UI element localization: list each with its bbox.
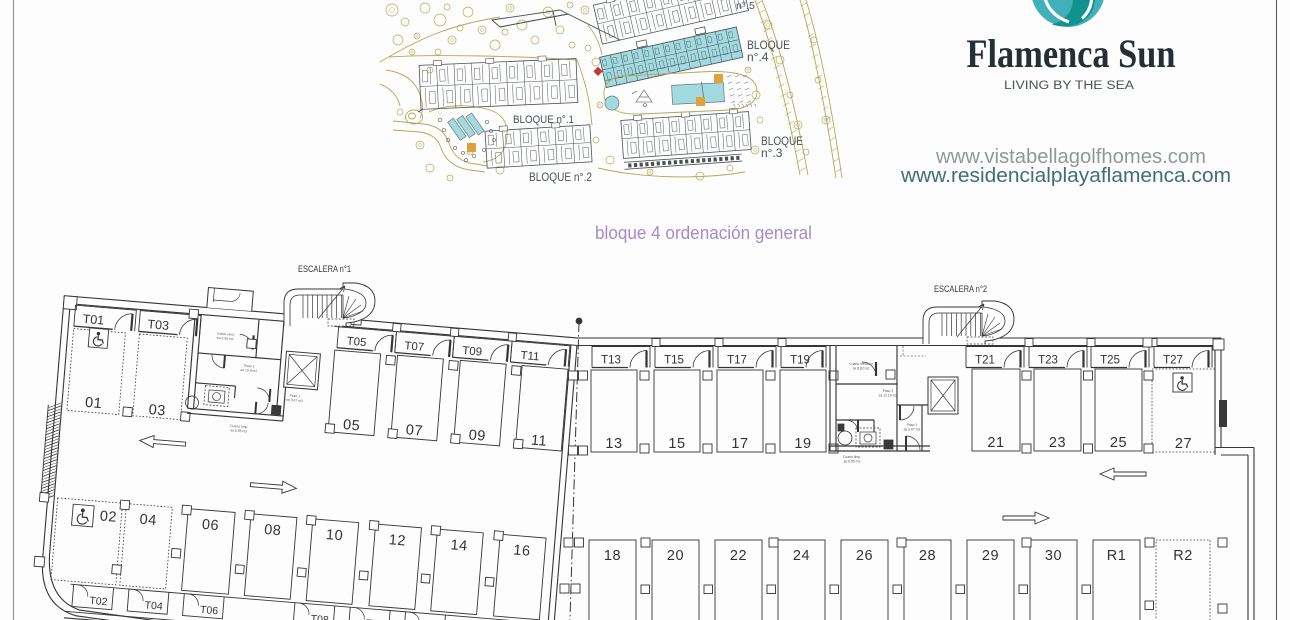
svg-text:15: 15	[668, 436, 685, 452]
svg-text:ESCALERA n°2: ESCALERA n°2	[934, 284, 987, 294]
svg-text:16: 16	[513, 542, 531, 559]
svg-text:T09: T09	[462, 345, 483, 359]
svg-text:n°.4: n°.4	[747, 50, 769, 64]
svg-text:BLOQUE n°.1: BLOQUE n°.1	[513, 114, 574, 126]
svg-text:T15: T15	[664, 355, 684, 367]
svg-text:Paso 1: Paso 1	[907, 423, 918, 427]
svg-text:08: 08	[264, 522, 282, 539]
svg-text:sa 6.95 m2: sa 6.95 m2	[844, 459, 861, 463]
svg-text:R1: R1	[1107, 548, 1127, 564]
svg-text:T17: T17	[727, 355, 747, 367]
svg-text:Paso 2: Paso 2	[883, 389, 894, 393]
svg-text:T21: T21	[975, 355, 995, 367]
svg-text:T07: T07	[404, 340, 425, 354]
svg-text:T19: T19	[790, 355, 810, 367]
svg-text:24: 24	[793, 548, 810, 564]
svg-text:www.residencialplayaflamenca.c: www.residencialplayaflamenca.com	[900, 164, 1231, 187]
svg-text:LIVING BY THE SEA: LIVING BY THE SEA	[1004, 80, 1134, 92]
svg-text:09: 09	[468, 427, 486, 444]
svg-text:05: 05	[342, 417, 360, 434]
svg-text:19: 19	[794, 436, 811, 452]
svg-text:sa 12.19 m2: sa 12.19 m2	[879, 393, 898, 397]
svg-text:sa 2.05 m2: sa 2.05 m2	[217, 336, 234, 341]
svg-text:T03: T03	[147, 317, 170, 333]
svg-text:17: 17	[731, 436, 748, 452]
svg-text:18: 18	[604, 548, 621, 564]
svg-text:29: 29	[982, 548, 999, 564]
svg-text:25: 25	[1110, 435, 1127, 451]
svg-text:Cuarto electrico: Cuarto electrico	[849, 362, 873, 366]
svg-text:T08: T08	[310, 613, 329, 620]
svg-text:sa 3.67 m2: sa 3.67 m2	[286, 398, 303, 403]
svg-text:12: 12	[388, 532, 406, 549]
svg-text:T04: T04	[144, 599, 163, 612]
svg-text:sa 10.9 m2: sa 10.9 m2	[240, 368, 257, 373]
svg-text:bloque 4 ordenación general: bloque 4 ordenación general	[595, 222, 812, 243]
svg-text:26: 26	[856, 548, 873, 564]
svg-text:Flamenca Sun: Flamenca Sun	[967, 31, 1176, 76]
svg-text:R2: R2	[1173, 548, 1193, 564]
svg-text:T02: T02	[89, 595, 108, 608]
svg-text:sa 6.95 m2: sa 6.95 m2	[230, 428, 247, 433]
svg-text:20: 20	[667, 548, 684, 564]
svg-text:n°.5: n°.5	[736, 0, 755, 12]
svg-text:02: 02	[99, 508, 117, 525]
svg-text:ESCALERA n°1: ESCALERA n°1	[298, 264, 351, 274]
svg-text:14: 14	[450, 537, 468, 554]
svg-text:10: 10	[325, 527, 343, 544]
svg-text:sa 8.62 m2: sa 8.62 m2	[853, 366, 870, 370]
svg-text:04: 04	[139, 512, 157, 529]
svg-text:03: 03	[148, 402, 166, 419]
svg-text:07: 07	[405, 422, 423, 439]
svg-text:13: 13	[605, 436, 622, 452]
svg-text:n°.3: n°.3	[761, 146, 783, 160]
svg-text:BLOQUE n°.2: BLOQUE n°.2	[529, 172, 592, 184]
svg-text:30: 30	[1045, 548, 1062, 564]
svg-text:28: 28	[919, 548, 936, 564]
svg-text:27: 27	[1175, 436, 1192, 452]
svg-text:06: 06	[201, 517, 219, 534]
svg-text:T06: T06	[199, 604, 218, 617]
svg-text:11: 11	[530, 432, 547, 449]
svg-text:Cuarto limp.: Cuarto limp.	[843, 455, 861, 459]
svg-text:T23: T23	[1038, 355, 1058, 367]
svg-text:T13: T13	[601, 355, 621, 367]
svg-text:01: 01	[84, 395, 102, 412]
svg-text:21: 21	[987, 435, 1004, 451]
svg-text:T01: T01	[82, 312, 105, 328]
svg-text:T05: T05	[346, 336, 367, 350]
svg-text:T25: T25	[1100, 355, 1120, 367]
svg-text:22: 22	[730, 548, 747, 564]
svg-text:T27: T27	[1163, 355, 1183, 367]
svg-text:sa 3.67 m2: sa 3.67 m2	[904, 427, 921, 431]
svg-text:T11: T11	[520, 350, 540, 364]
svg-text:23: 23	[1049, 435, 1066, 451]
